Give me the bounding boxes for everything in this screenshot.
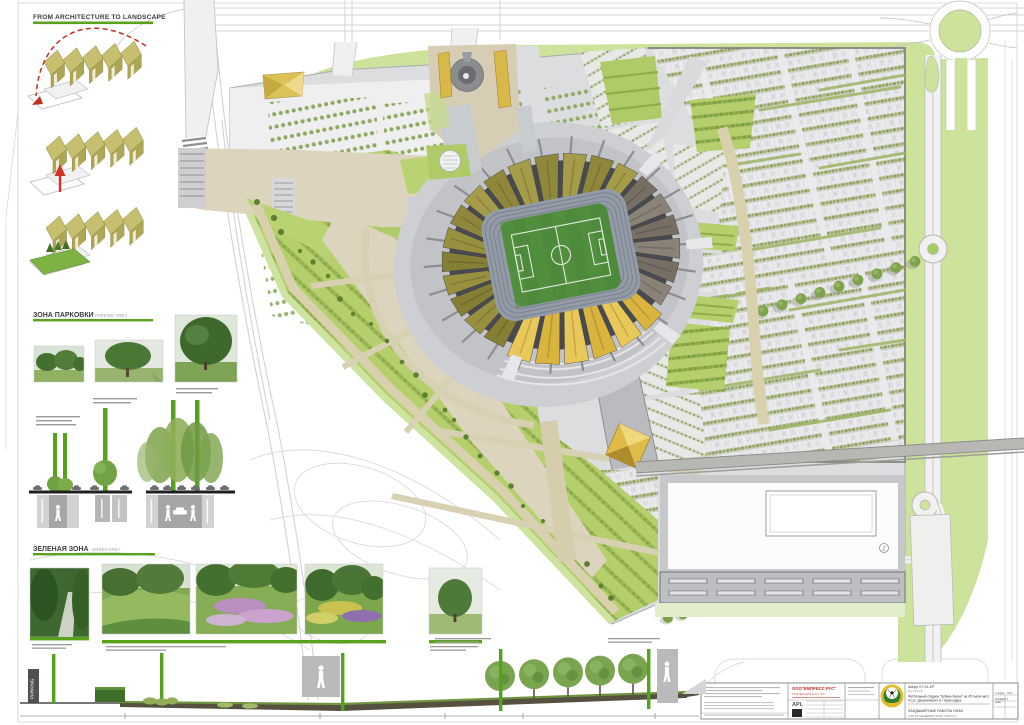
svg-text:APL: APL: [792, 702, 804, 708]
svg-text:OOO"ЕМПРЕСС РУС": OOO"ЕМПРЕСС РУС": [792, 686, 836, 691]
svg-text:Код 0-01-КР: Код 0-01-КР: [908, 689, 923, 693]
svg-text:КОНЦЕПЦИЯ ООО "КА": КОНЦЕПЦИЯ ООО "КА": [792, 692, 826, 696]
svg-text:ЗЕЛЕНАЯ ЗОНА: ЗЕЛЕНАЯ ЗОНА: [33, 546, 89, 553]
svg-text:GREEN AREA: GREEN AREA: [92, 547, 121, 552]
svg-text:ЗОНА ПАРКОВКИ: ЗОНА ПАРКОВКИ: [33, 312, 94, 319]
svg-text:А-20-04 ЛАНДШАФТ ПЛАН 1:500: А-20-04 ЛАНДШАФТ ПЛАН 1:500 И-О: [908, 714, 957, 718]
svg-text:по ул. Дзержинского в г. Красн: по ул. Дзержинского в г. Краснодаре: [908, 699, 962, 703]
svg-text:PARKING: PARKING: [30, 678, 35, 699]
svg-text:ЦИЯ: ЦИЯ: [995, 700, 1001, 704]
svg-text:PARKING AREA: PARKING AREA: [95, 313, 127, 318]
svg-text:Стадия: Стадия: [995, 691, 1005, 695]
svg-text:ЛАНДШАФТНЫЕ РАБОТЫ ПЛАН: ЛАНДШАФТНЫЕ РАБОТЫ ПЛАН: [908, 709, 964, 713]
svg-text:FROM ARCHITECTURE TO LANDSCAPE: FROM ARCHITECTURE TO LANDSCAPE: [33, 14, 166, 21]
svg-text:Шифр 07-01-КР: Шифр 07-01-КР: [908, 685, 935, 689]
svg-text:Z: Z: [882, 547, 885, 553]
svg-text:Лист: Лист: [1007, 691, 1014, 695]
